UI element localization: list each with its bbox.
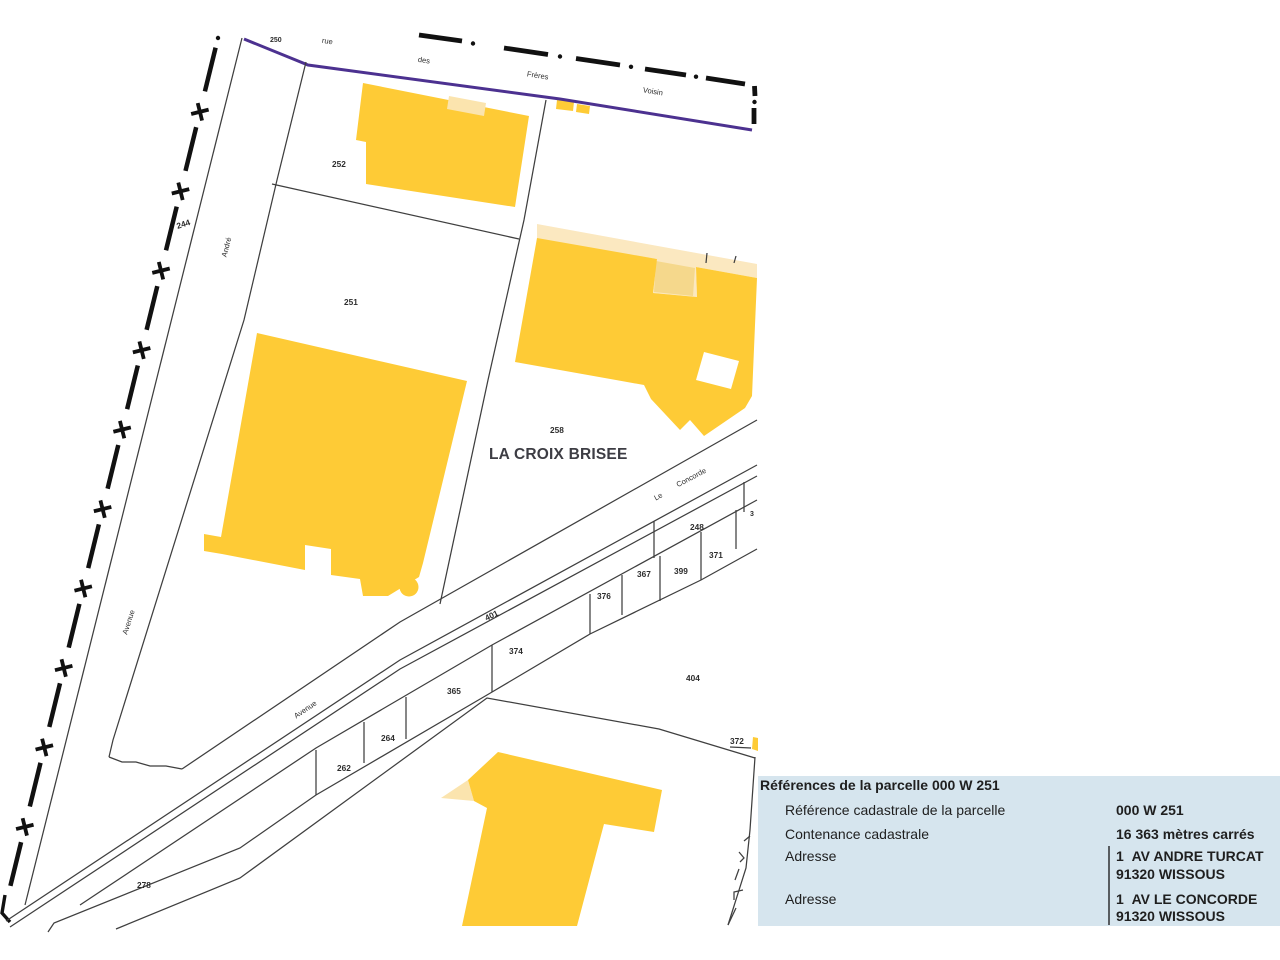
svg-text:278: 278 (137, 880, 151, 890)
svg-text:3: 3 (750, 511, 754, 518)
svg-text:374: 374 (509, 646, 523, 656)
svg-text:Référence cadastrale de la par: Référence cadastrale de la parcelle (785, 802, 1005, 818)
svg-text:399: 399 (674, 566, 688, 576)
svg-text:000 W 251: 000 W 251 (1116, 802, 1184, 818)
svg-text:252: 252 (332, 159, 346, 169)
svg-text:Adresse: Adresse (785, 848, 837, 864)
svg-text:16 363 mètres carrés: 16 363 mètres carrés (1116, 826, 1255, 842)
svg-text:250: 250 (270, 37, 282, 44)
svg-text:1 AV LE CONCORDE: 1 AV LE CONCORDE (1116, 891, 1257, 907)
svg-text:91320 WISSOUS: 91320 WISSOUS (1116, 866, 1225, 882)
svg-text:264: 264 (381, 733, 395, 743)
svg-text:des: des (417, 55, 431, 66)
svg-text:371: 371 (709, 550, 723, 560)
svg-text:248: 248 (690, 522, 704, 532)
svg-text:251: 251 (344, 297, 358, 307)
svg-text:Contenance cadastrale: Contenance cadastrale (785, 826, 929, 842)
svg-text:1 AV ANDRE TURCAT: 1 AV ANDRE TURCAT (1116, 848, 1264, 864)
svg-text:376: 376 (597, 591, 611, 601)
svg-text:367: 367 (637, 569, 651, 579)
svg-text:258: 258 (550, 425, 564, 435)
svg-text:262: 262 (337, 763, 351, 773)
svg-text:LA CROIX BRISEE: LA CROIX BRISEE (489, 446, 628, 463)
svg-text:rue: rue (321, 36, 333, 47)
svg-text:Adresse: Adresse (785, 891, 837, 907)
svg-text:404: 404 (686, 673, 700, 683)
svg-text:372: 372 (730, 736, 744, 746)
svg-text:365: 365 (447, 686, 461, 696)
svg-text:Références de la parcelle 000: Références de la parcelle 000 W 251 (760, 777, 1000, 793)
svg-text:91320 WISSOUS: 91320 WISSOUS (1116, 908, 1225, 924)
